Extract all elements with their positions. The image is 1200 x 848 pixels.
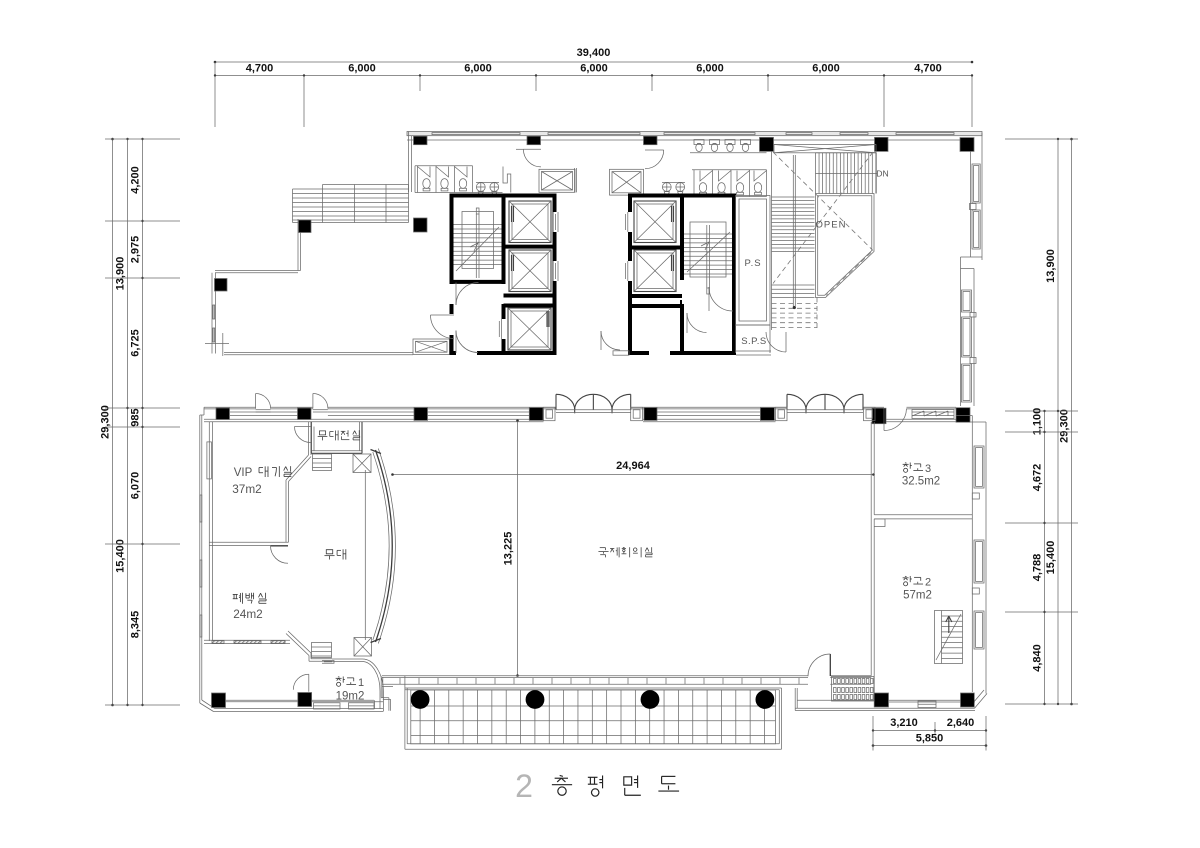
svg-text:29,300: 29,300 — [100, 405, 112, 439]
svg-text:2,640: 2,640 — [947, 717, 975, 729]
svg-text:4,672: 4,672 — [1032, 464, 1044, 492]
svg-text:4,200: 4,200 — [130, 166, 142, 194]
svg-text:6,070: 6,070 — [130, 472, 142, 500]
svg-text:1: 1 — [358, 677, 364, 689]
svg-text:24,964: 24,964 — [616, 460, 651, 472]
svg-text:6,000: 6,000 — [696, 63, 724, 75]
svg-text:29,300: 29,300 — [1059, 409, 1071, 443]
svg-text:OPEN: OPEN — [816, 220, 847, 231]
svg-text:32.5m2: 32.5m2 — [902, 476, 940, 488]
svg-text:13,225: 13,225 — [503, 532, 515, 566]
svg-text:4,700: 4,700 — [914, 63, 942, 75]
svg-text:2,975: 2,975 — [130, 236, 142, 264]
svg-text:4,700: 4,700 — [246, 63, 274, 75]
svg-text:6,000: 6,000 — [348, 63, 376, 75]
svg-text:39,400: 39,400 — [577, 47, 611, 59]
svg-text:5,850: 5,850 — [916, 733, 944, 745]
svg-text:3,210: 3,210 — [890, 717, 918, 729]
svg-text:13,900: 13,900 — [115, 257, 127, 291]
svg-text:57m2: 57m2 — [903, 590, 932, 602]
svg-text:4,840: 4,840 — [1032, 644, 1044, 672]
svg-text:6,725: 6,725 — [130, 329, 142, 357]
svg-text:15,400: 15,400 — [1045, 541, 1057, 575]
svg-text:1,100: 1,100 — [1032, 408, 1044, 436]
svg-text:2: 2 — [925, 577, 931, 589]
svg-text:8,345: 8,345 — [130, 611, 142, 639]
svg-text:P.S: P.S — [744, 258, 761, 269]
svg-text:6,000: 6,000 — [580, 63, 608, 75]
svg-text:6,000: 6,000 — [812, 63, 840, 75]
svg-text:19m2: 19m2 — [336, 691, 365, 703]
svg-text:4,788: 4,788 — [1032, 554, 1044, 582]
svg-text:S.P.S: S.P.S — [741, 336, 767, 347]
svg-text:VIP: VIP — [234, 467, 253, 479]
svg-text:37m2: 37m2 — [232, 482, 262, 496]
svg-text:985: 985 — [130, 408, 142, 426]
svg-text:3: 3 — [925, 463, 931, 475]
svg-text:2: 2 — [515, 768, 533, 804]
svg-text:24m2: 24m2 — [233, 607, 263, 621]
svg-text:13,900: 13,900 — [1045, 249, 1057, 283]
svg-text:6,000: 6,000 — [464, 63, 492, 75]
svg-text:DN: DN — [876, 169, 888, 179]
